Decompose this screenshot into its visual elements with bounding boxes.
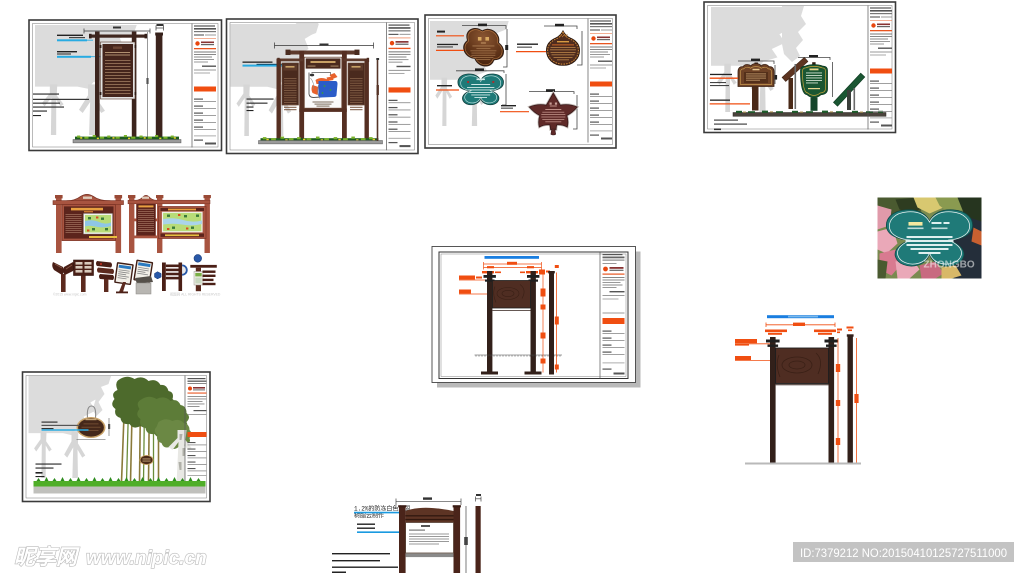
svg-text:ZHONGBO: ZHONGBO: [924, 260, 975, 271]
svg-text:昵图网 ALL RIGHTS RESERVED: 昵图网 ALL RIGHTS RESERVED: [170, 292, 221, 297]
svg-text:www.nipic.cn: www.nipic.cn: [86, 548, 207, 569]
svg-text:©2015 www.nipic.com: ©2015 www.nipic.com: [53, 293, 87, 297]
svg-text:昵享网: 昵享网: [14, 545, 80, 569]
svg-text:ID:7379212 NO:2015041012572751: ID:7379212 NO:20150410125727511000: [800, 546, 1007, 560]
